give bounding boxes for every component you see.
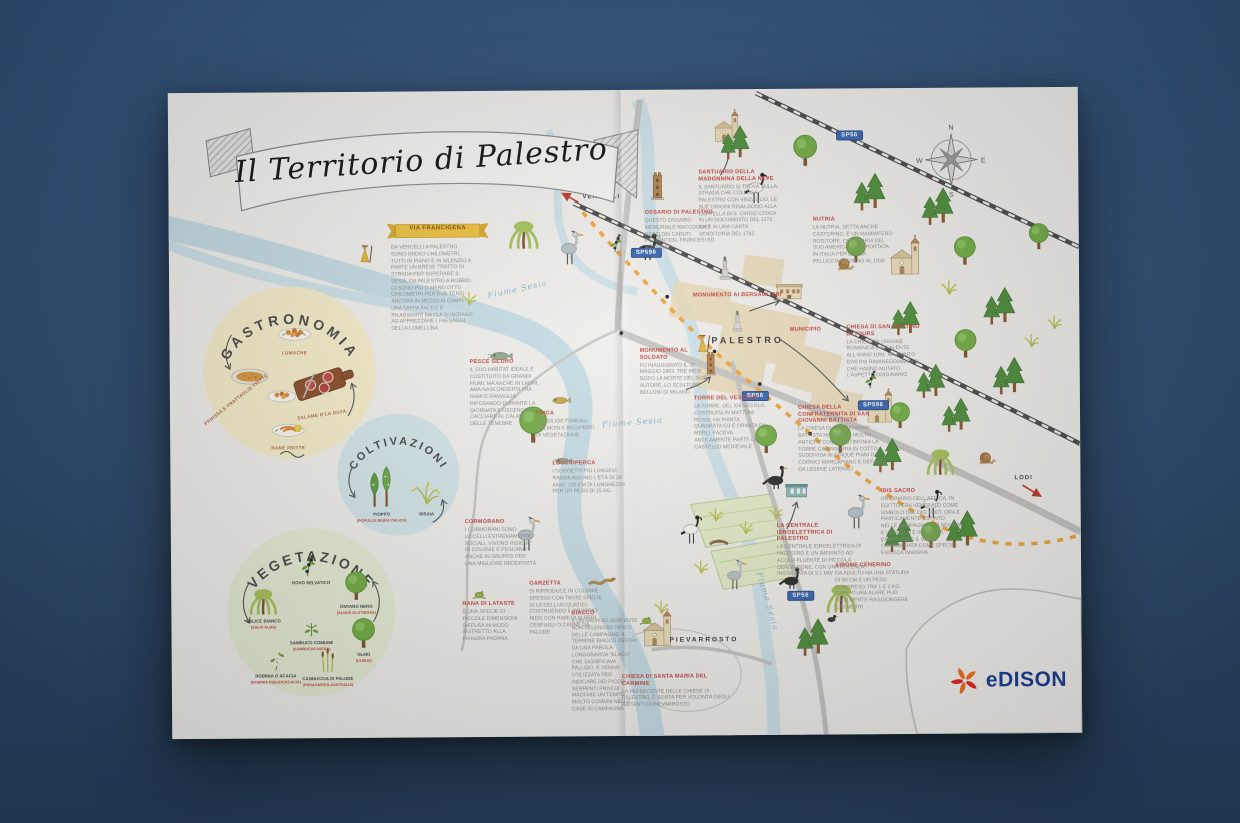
lodi-arrow-icon [1023, 485, 1041, 496]
note-body: LA CHIESA DI ORIGINE ROMANICA È RISALENT… [846, 339, 924, 380]
note-body: I SOGGETTI PIÙ LONGEVI RAGGIUNGONO L'ETÀ… [552, 468, 628, 496]
vegetazione-item-label: SAMBUCO COMUNE [290, 640, 334, 645]
road-badge-sp56: SP56 [787, 591, 814, 601]
snail-icon [980, 453, 996, 464]
note-body: I CORMORANI SONO UCCELLI ESTREMAMENTE SO… [465, 527, 537, 568]
frog-icon [640, 617, 653, 624]
vegetazione-item-latin: (ALNUS GLUTINOSA) [337, 611, 377, 615]
vegetazione-item-latin: (ULMUS) [356, 659, 373, 663]
note-body: LA CHIESA DI SAN GIOVANNI BATTISTA HA OR… [798, 425, 888, 473]
map-note-monumento-soldato: MONUMENTO AL SOLDATOFU INAUGURATO IL 30 … [640, 347, 712, 396]
note-title: TINCA [536, 410, 600, 417]
map-note-tinca: TINCAPREDILIGE FONDALI MELMOSI E RICOPER… [536, 410, 600, 439]
note-title: AIRONE CENERINO [835, 562, 909, 569]
compass-s-label: S [949, 192, 954, 199]
note-title: TORRE DEL VESCOVO [694, 395, 766, 402]
map-note-monumento-bersaglieri: MONUMENTO AI BERSAGLIERI [687, 292, 787, 299]
coltivazioni-item-label: RISAIA [419, 511, 435, 516]
note-title: NUTRIA [813, 216, 893, 223]
coltivazioni-item-label: PIOPPO [373, 512, 390, 517]
frog-icon [473, 591, 486, 598]
note-title: MONUMENTO AL SOLDATO [640, 347, 712, 361]
compass-e-label: E [981, 157, 986, 164]
vegetazione-item-label: SALICE BIANCO [246, 618, 281, 623]
title-banner: Il Territorio di Palestro [196, 108, 647, 226]
note-title: PESCE SILURO [470, 359, 544, 366]
conifer-trees-icon [942, 398, 970, 432]
round-tree-icon [954, 237, 975, 265]
gastronomia-item-label: LUMACHE [282, 350, 307, 355]
vegetazione-item-latin: (PHRAGMITES AUSTRALIS) [303, 683, 354, 687]
compass-n-label: N [948, 125, 953, 132]
map-note-airone-cenerino: AIRONE CENERINODA ADULTO HA UNA STATURA … [835, 562, 909, 611]
note-title: MONUMENTO AI BERSAGLIERI [687, 292, 787, 299]
map-note-municipio: MUNICIPIO [765, 326, 845, 333]
note-title: LUCCIOPERCA [552, 460, 628, 467]
note-body: FU INAUGURATO IL 30 MAGGIO 1863, TRE MES… [640, 362, 712, 396]
note-title: CHIESA DI SAN MARTINO DI TOURS [846, 324, 924, 338]
boundary-southeast [906, 589, 1082, 734]
map-note-nutria: NUTRIALA NUTRIA, DETTA ANCHE CASTORINO, … [813, 216, 893, 265]
note-body: PREDILIGE FONDALI MELMOSI E RICOPERTI DI… [536, 418, 600, 439]
note-title: BIACCO [571, 610, 637, 617]
ibis-icon [681, 516, 702, 544]
map-note-rana-di-lataste: RANA DI LATASTEÈ UNA SPECIE DI PICCOLE D… [462, 601, 526, 643]
note-body: IL SANTUARIO SI TROVA SULLA STRADA CHE C… [698, 184, 778, 239]
coltivazioni-circle: COLTIVAZIONI PIOPPO (POPULUS NIGRA ITALI… [334, 410, 463, 539]
direction-label-lodi: LODI [1014, 475, 1032, 481]
note-body: LA NUTRIA, DETTA ANCHE CASTORINO, È UN M… [813, 224, 893, 265]
vegetazione-item-label: ROVO SELVATICO [292, 580, 331, 585]
grass-tuft-icon [1047, 316, 1061, 329]
poster: N E S W [168, 87, 1082, 739]
note-title: LA CENTRALE IDROELETTRICA DI PALESTRO [777, 522, 865, 542]
snails-dish-icon [278, 328, 310, 340]
willow-tree-icon [510, 221, 537, 249]
vegetazione-circle: VEGETAZIONE ROVO SELVATICO ONTANO NERO (… [223, 524, 400, 701]
ossario-tower-illustration [651, 173, 663, 200]
vegetazione-item-label: OLMO [357, 652, 371, 657]
map-note-ibis-sacro: IBIS SACROORIGINARIO DELL'AFRICA, IN EGI… [881, 488, 963, 557]
round-tree-icon [890, 403, 909, 429]
note-title: RANA DI LATASTE [462, 601, 526, 608]
edison-sun-icon [948, 664, 982, 698]
note-body: LA TORRE, DEL XIII SECOLO, COSTRUITA IN … [694, 403, 766, 451]
edison-wordmark: eDISON [986, 668, 1067, 693]
conifer-trees-icon [854, 173, 885, 210]
desk-background: N E S W [0, 0, 1240, 823]
town-label-pievarrosto: PIEVARROSTO [670, 636, 739, 643]
map-note-torre-vescovo: TORRE DEL VESCOVOLA TORRE, DEL XIII SECO… [694, 395, 766, 451]
conifer-trees-icon [993, 357, 1024, 394]
map-note-confraternita: CHIESA DELLA CONFRATERNITA DI SAN GIOVAN… [798, 404, 888, 473]
round-tree-icon [955, 329, 976, 357]
vegetazione-item-label: ROBINIA O ACACIA [255, 673, 297, 678]
grass-tuft-icon [1024, 334, 1038, 347]
vegetazione-item-latin: (ROBINIA PSEUDOACACIA) [251, 680, 302, 684]
grass-tuft-icon [941, 280, 956, 294]
conifer-trees-icon [984, 287, 1015, 324]
vegetazione-item-latin: (SAMBUCUS NIGRA) [293, 647, 332, 651]
note-title: CHIESA DI SANTA MARIA DEL CARMINE [622, 673, 734, 687]
map-note-san-martino: CHIESA DI SAN MARTINO DI TOURSLA CHIESA … [846, 324, 924, 380]
road-badge-sp56: SP56 [836, 130, 863, 140]
note-title: MUNICIPIO [765, 326, 845, 333]
power-plant-illustration [786, 484, 808, 497]
via-francigena-text: DA VERCELLI A PALESTRO SONO UNDICI CHILO… [391, 244, 474, 332]
grass-tuft-icon [694, 560, 708, 573]
note-title: GARZETTA [529, 580, 603, 587]
note-title: IBIS SACRO [881, 488, 963, 495]
note-body: LA PIÙ RECENTE DELLE CHIESE DI PALESTRO,… [622, 688, 734, 709]
coltivazioni-item-latin: (POPULUS NIGRA ITALICA) [357, 519, 408, 523]
note-title: SANTUARIO DELLA MADONNINA DELLA NEVE [698, 169, 778, 183]
pilgrim-icon [361, 245, 372, 263]
fish-icon [553, 397, 571, 403]
san-martino-church-illustration [890, 235, 919, 274]
note-body: IL SUO HABITAT IDEALE È COSTITUITO DA GR… [470, 367, 544, 428]
note-body: DA ADULTO HA UNA STATURA DI 90 CM E UN P… [835, 570, 909, 611]
town-label-palestro: PALESTRO [711, 335, 783, 346]
note-title: CHIESA DELLA CONFRATERNITA DI SAN GIOVAN… [798, 404, 888, 424]
via-francigena-title: VIA FRANCIGENA [387, 225, 489, 232]
note-body: È UNA SPECIE DI PICCOLE DIMENSIONI DIFFU… [462, 609, 526, 643]
gastronomia-item-label: RANE FRITTE [271, 445, 305, 450]
note-body: ORIGINARIO DELL'AFRICA, IN EGITTO ERA VE… [881, 496, 963, 557]
duck-icon [827, 615, 838, 622]
vegetazione-item-latin: (SALIX ALBA) [251, 625, 277, 629]
compass-w-label: W [916, 158, 923, 165]
map-note-luccioperca: LUCCIOPERCAI SOGGETTI PIÙ LONGEVI RAGGIU… [552, 460, 628, 496]
round-tree-icon [1029, 224, 1048, 250]
map-note-chiesa-carmine: CHIESA DI SANTA MARIA DEL CARMINELA PIÙ … [622, 673, 734, 709]
round-tree-icon [794, 135, 817, 166]
fried-frogs-dish-icon [272, 424, 304, 436]
vegetazione-item-label: CANNUCCIA DI PALUDE [302, 676, 353, 681]
note-title: CORMORANO [465, 519, 537, 526]
vegetazione-item-label: ONTANO NERO [340, 604, 373, 609]
frattaglie-dish-icon [268, 391, 296, 402]
map-note-santuario: SANTUARIO DELLA MADONNINA DELLA NEVEIL S… [698, 169, 778, 238]
map-note-cormorano: CORMORANOI CORMORANI SONO UCCELLI ESTREM… [465, 519, 537, 568]
map-note-pesce-siluro: PESCE SILUROIL SUO HABITAT IDEALE È COST… [470, 359, 544, 428]
via-francigena-callout: VIA FRANCIGENA [387, 222, 489, 240]
edison-logo: eDISON [948, 663, 1067, 698]
carmine-church-illustration [643, 608, 671, 646]
